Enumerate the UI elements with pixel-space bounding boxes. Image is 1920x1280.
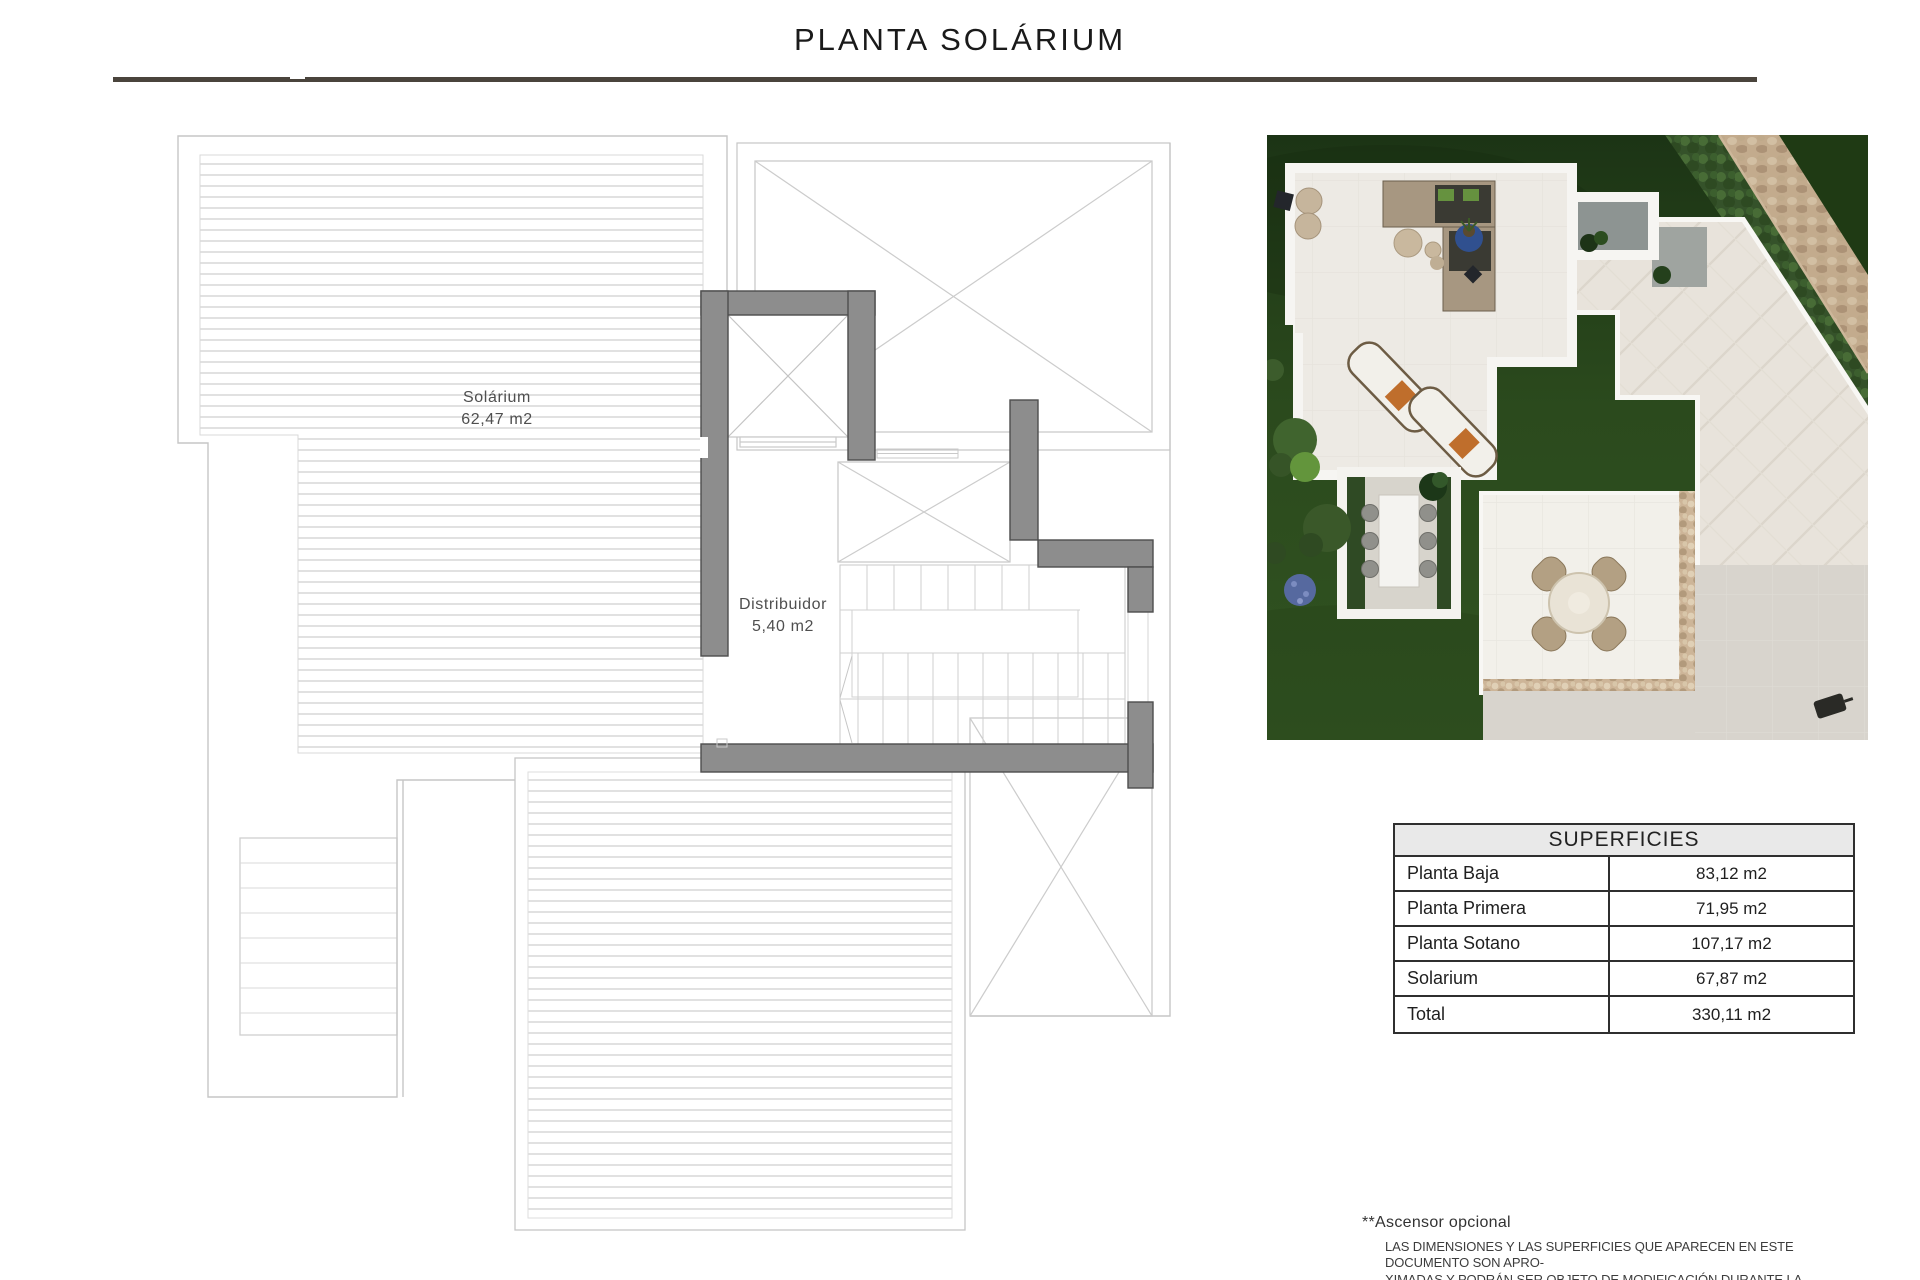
disclaimer-line: XIMADAS Y PODRÁN SER OBJETO DE MODIFICAC… (1385, 1272, 1875, 1280)
pouf (1296, 188, 1322, 214)
side-table (1425, 242, 1441, 258)
room-label-distribuidor: Distribuidor 5,40 m2 (739, 594, 827, 638)
right-lower-wall (1128, 702, 1153, 788)
row-label: Planta Baja (1395, 857, 1610, 890)
room-label-solarium: Solárium 62,47 m2 (461, 387, 533, 431)
stairwell-box (1567, 192, 1659, 260)
plan-sheet-page: PLANTA SOLÁRIUM (0, 0, 1920, 1280)
table-row: Solarium 67,87 m2 (1395, 962, 1853, 997)
step-wall-lower (1128, 567, 1153, 612)
elevator-note: **Ascensor opcional (1362, 1214, 1511, 1232)
disclaimer-text: LAS DIMENSIONES Y LAS SUPERFICIES QUE AP… (1385, 1239, 1875, 1280)
dining-nook (1337, 467, 1461, 619)
solarium-deck-hatch (200, 155, 703, 753)
ground-paving (1483, 691, 1695, 740)
room-area: 5,40 m2 (739, 616, 827, 638)
step-wall-horizontal (1038, 540, 1153, 567)
pouf (1295, 213, 1321, 239)
round-table-patio (1483, 491, 1695, 695)
table-title: SUPERFICIES (1395, 825, 1853, 857)
bottom-wall (701, 744, 1153, 772)
wall-notch (700, 437, 708, 458)
table-row: Planta Sotano 107,17 m2 (1395, 927, 1853, 962)
elevator-wall-left (701, 291, 728, 656)
left-stair-block (240, 838, 397, 1035)
row-label: Planta Primera (1395, 892, 1610, 925)
table-row: Planta Baja 83,12 m2 (1395, 857, 1853, 892)
row-label: Total (1395, 997, 1610, 1032)
aerial-render-photo (1267, 135, 1868, 740)
elevator-wall-right (848, 291, 875, 460)
stairs (840, 565, 1148, 744)
skylight-void (838, 462, 1010, 562)
elevator-cab (728, 315, 848, 447)
row-value: 71,95 m2 (1610, 892, 1853, 925)
step-wall-vertical (1010, 400, 1038, 540)
row-value: 67,87 m2 (1610, 962, 1853, 995)
row-label: Planta Sotano (1395, 927, 1610, 960)
row-value: 83,12 m2 (1610, 857, 1853, 890)
disclaimer-line: LAS DIMENSIONES Y LAS SUPERFICIES QUE AP… (1385, 1239, 1875, 1272)
row-value: 330,11 m2 (1610, 997, 1853, 1032)
room-name: Distribuidor (739, 594, 827, 616)
row-value: 107,17 m2 (1610, 927, 1853, 960)
lower-deck-hatch (515, 758, 965, 1230)
room-name: Solárium (461, 387, 533, 409)
table-row: Planta Primera 71,95 m2 (1395, 892, 1853, 927)
room-area: 62,47 m2 (461, 409, 533, 431)
side-table (1430, 256, 1444, 270)
row-label: Solarium (1395, 962, 1610, 995)
stone-trim (1679, 491, 1695, 695)
coffee-table (1394, 229, 1422, 257)
table-row: Total 330,11 m2 (1395, 997, 1853, 1032)
superficies-table: SUPERFICIES Planta Baja 83,12 m2 Planta … (1393, 823, 1855, 1034)
